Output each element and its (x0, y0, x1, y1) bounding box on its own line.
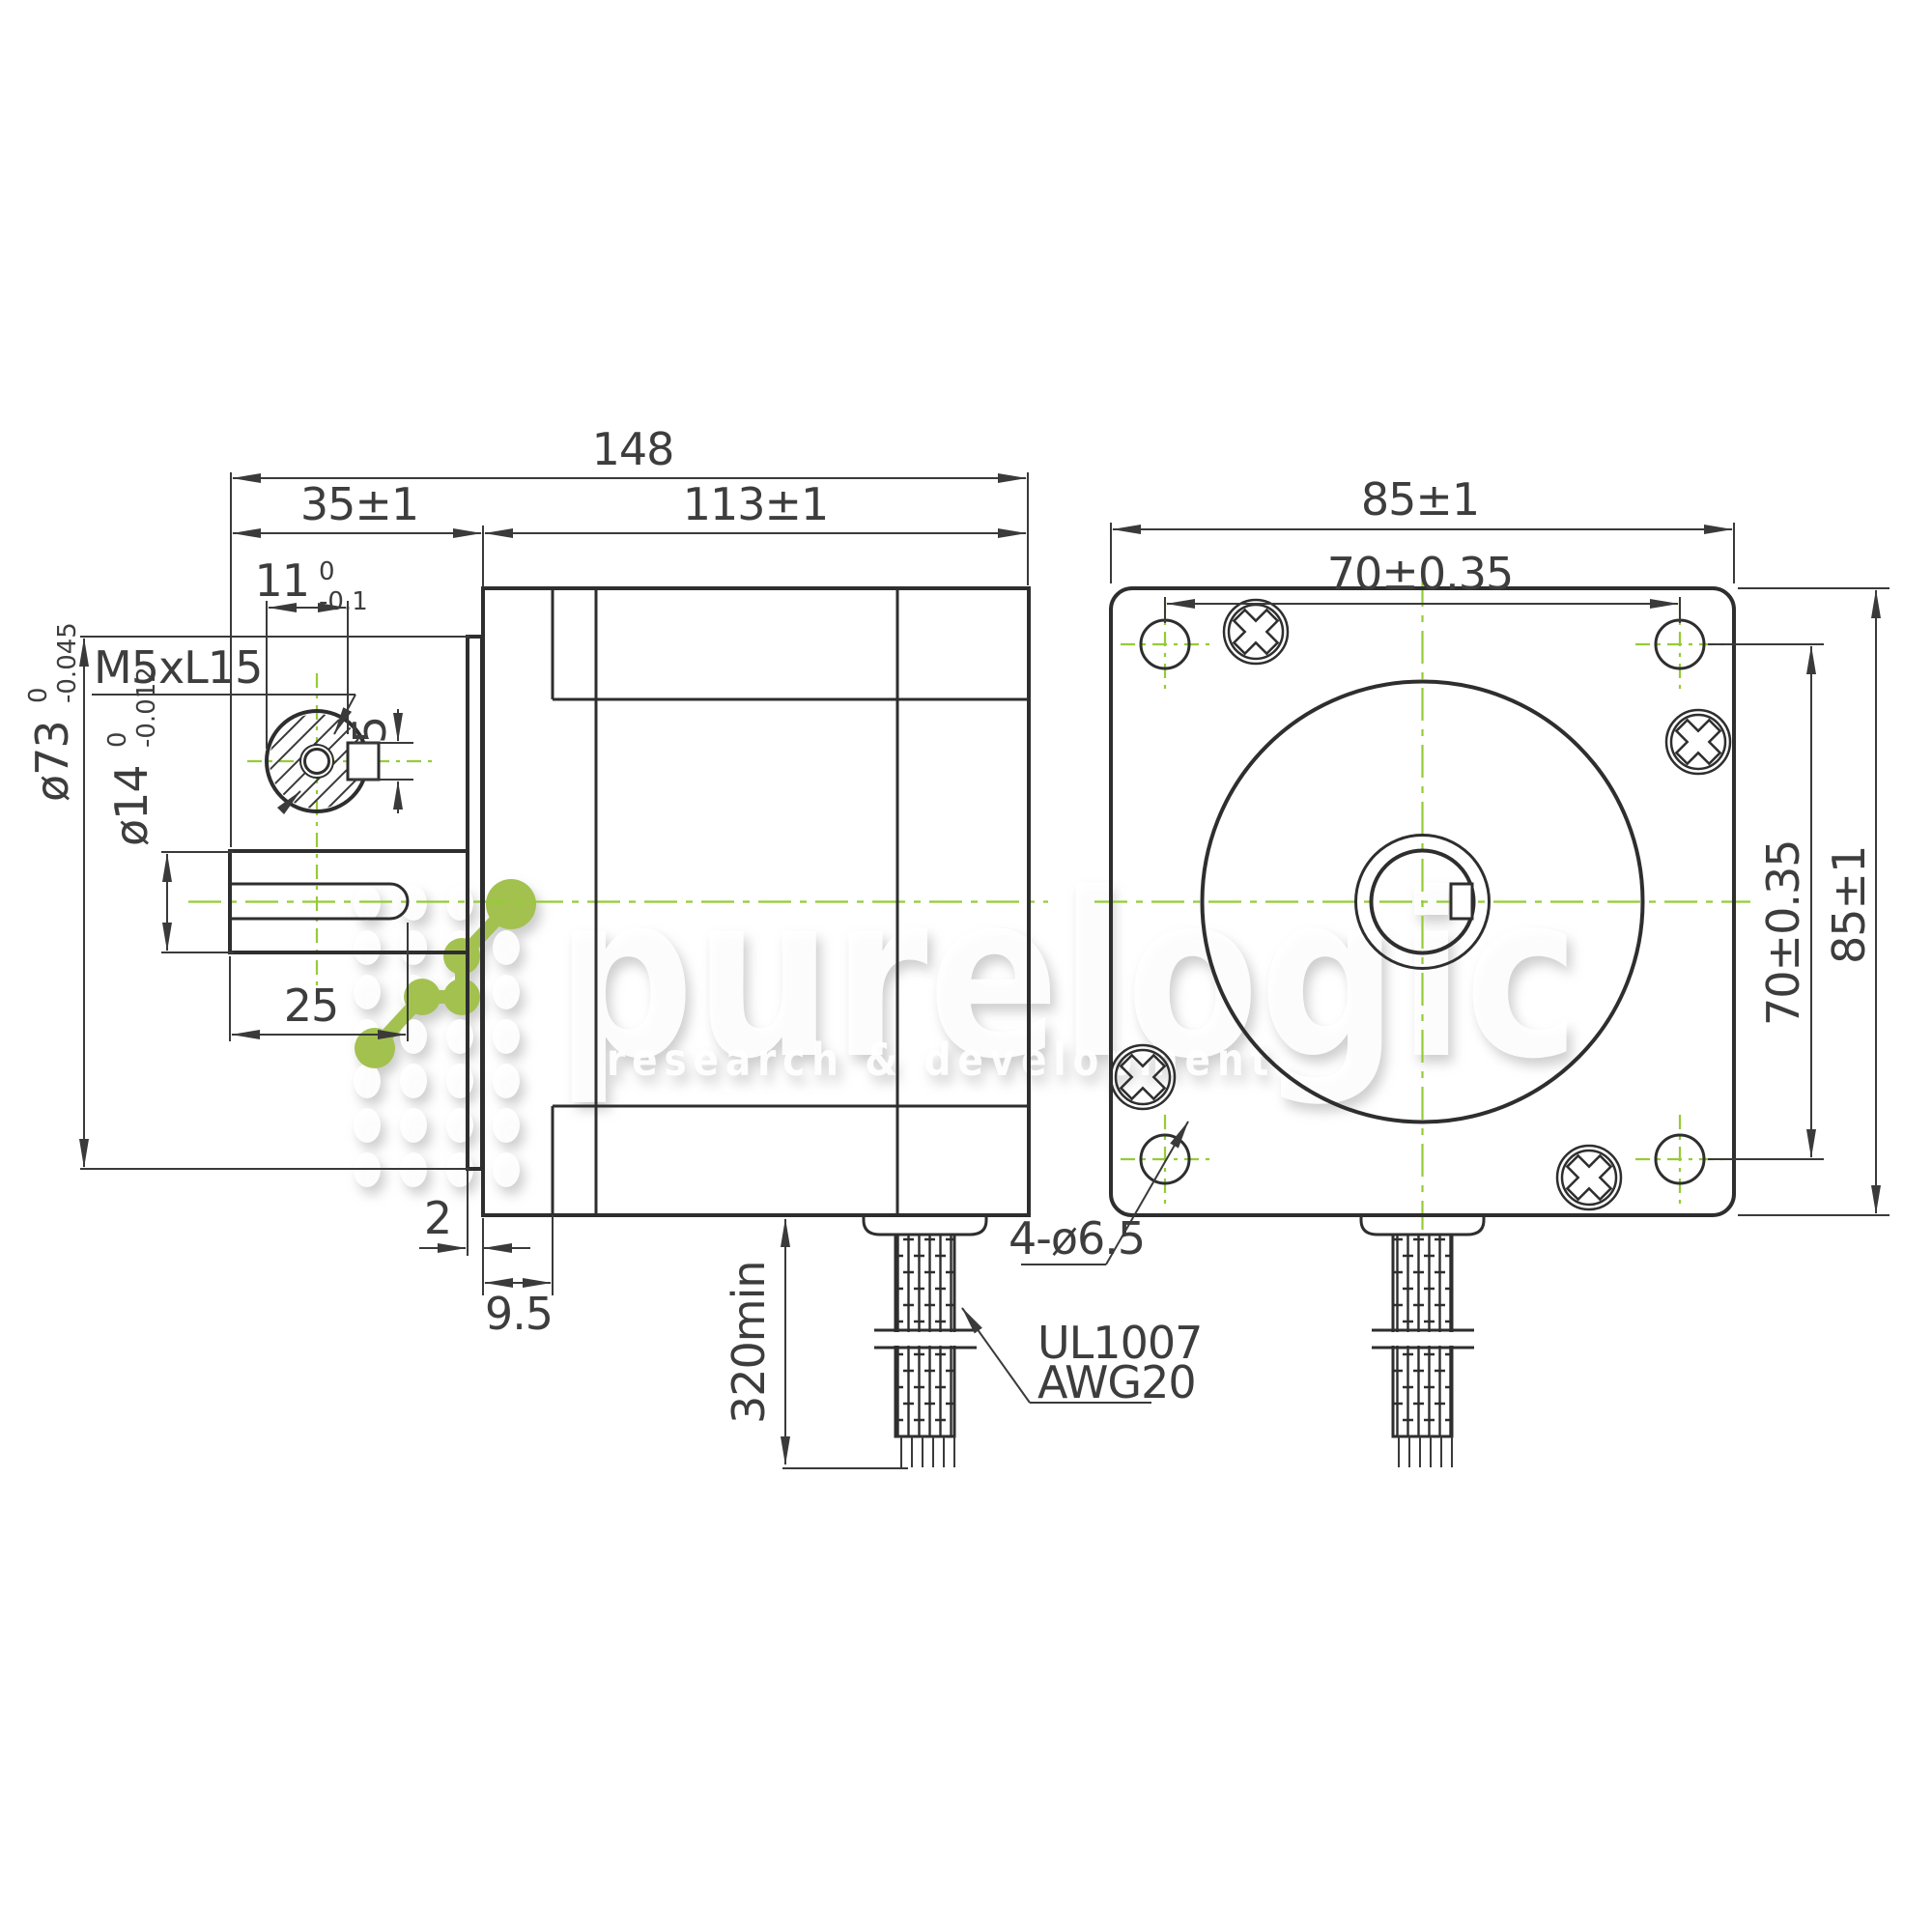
dim-shaft-diameter: ø14 0 -0.012 (103, 667, 234, 952)
purelogic-watermark: purelogic research & development (354, 845, 1579, 1187)
svg-text:320min: 320min (723, 1261, 775, 1424)
svg-text:ø73: ø73 (26, 721, 78, 802)
svg-text:0: 0 (103, 731, 132, 748)
shaft-end-detail (167, 689, 467, 834)
dim-body-length: 113±1 (485, 478, 1026, 533)
svg-text:M5xL15: M5xL15 (94, 641, 262, 694)
side-cable (864, 1216, 986, 1467)
mounting-hole-callout: 4-ø6.5 (1009, 1122, 1188, 1264)
svg-text:70±0.35: 70±0.35 (1327, 548, 1514, 600)
svg-text:2: 2 (424, 1192, 451, 1244)
cable-wires (1399, 1436, 1452, 1467)
svg-text:35±1: 35±1 (300, 478, 418, 530)
drawing-canvas: purelogic research & development (0, 0, 1932, 1932)
svg-text:-0.045: -0.045 (53, 622, 82, 703)
svg-text:113±1: 113±1 (683, 478, 829, 530)
svg-text:-0.012: -0.012 (132, 667, 161, 748)
motor-drawing-svg: purelogic research & development (0, 0, 1932, 1932)
svg-text:9.5: 9.5 (485, 1288, 553, 1340)
svg-text:0: 0 (24, 687, 53, 703)
cable-break-gap (872, 1332, 979, 1346)
svg-text:70±0.35: 70±0.35 (1757, 840, 1809, 1027)
phillips-screw-icon (1556, 1145, 1622, 1210)
phillips-screw-icon (1223, 599, 1289, 665)
dim-front-step: 9.5 (483, 1215, 553, 1340)
front-cable (1361, 1216, 1484, 1467)
svg-text:25: 25 (284, 980, 339, 1032)
flat-notch-mask (349, 744, 378, 779)
svg-text:85±1: 85±1 (1361, 473, 1479, 526)
front-flat-mask (1452, 885, 1471, 918)
cable-bushing (864, 1216, 986, 1235)
svg-text:85±1: 85±1 (1823, 846, 1875, 964)
cable-break-gap (1370, 1332, 1476, 1346)
dim-flat-length: 25 (230, 923, 408, 1041)
svg-text:11: 11 (254, 554, 309, 607)
cable-spec-callout: UL1007 AWG20 (962, 1308, 1202, 1408)
svg-text:-0.1: -0.1 (319, 587, 368, 616)
svg-text:ø14: ø14 (105, 765, 157, 846)
svg-text:5: 5 (344, 717, 396, 744)
svg-text:0: 0 (319, 557, 335, 586)
svg-text:AWG20: AWG20 (1037, 1356, 1196, 1408)
cable-wires (901, 1436, 954, 1467)
svg-text:148: 148 (592, 423, 674, 475)
svg-text:4-ø6.5: 4-ø6.5 (1009, 1212, 1145, 1264)
phillips-screw-icon (1665, 709, 1731, 775)
